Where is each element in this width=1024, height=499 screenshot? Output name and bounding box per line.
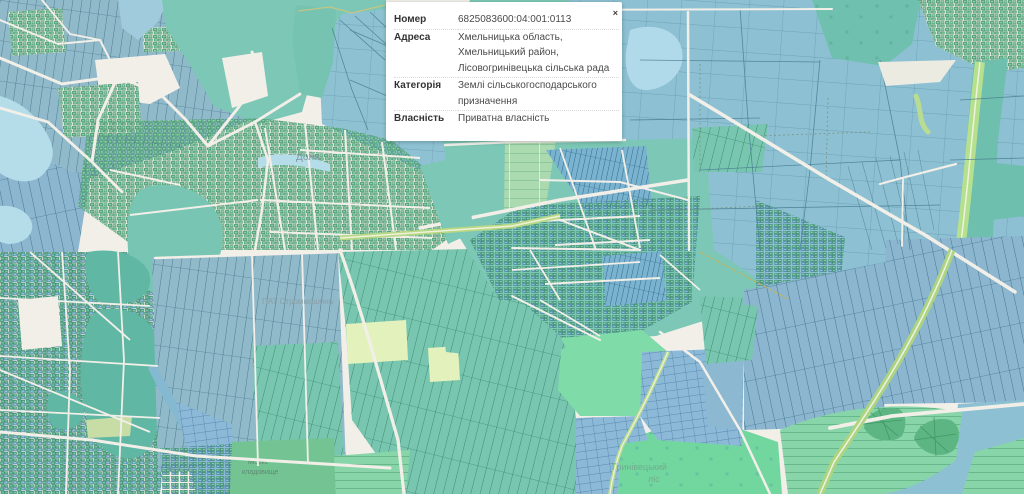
svg-text:Доли: Доли [296, 152, 320, 163]
svg-text:кладовище: кладовище [242, 469, 278, 476]
svg-text:ліс: ліс [648, 474, 660, 484]
svg-text:Гринівецький: Гринівецький [612, 462, 667, 472]
svg-text:ПАТ Строммашина: ПАТ Строммашина [262, 297, 334, 306]
